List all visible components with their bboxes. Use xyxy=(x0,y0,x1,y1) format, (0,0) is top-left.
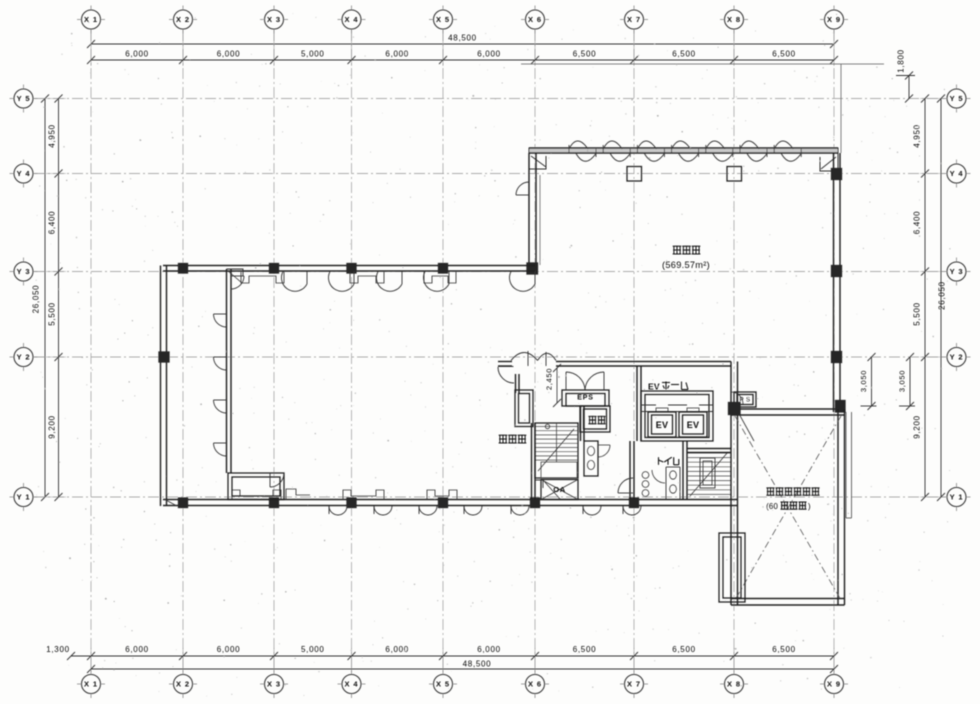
svg-text:Y 2: Y 2 xyxy=(17,353,31,362)
svg-text:X 5: X 5 xyxy=(436,680,450,689)
svg-text:6,500: 6,500 xyxy=(672,645,696,654)
svg-text:X 3: X 3 xyxy=(267,680,281,689)
svg-text:26,050: 26,050 xyxy=(32,285,41,314)
svg-text:X 9: X 9 xyxy=(827,680,841,689)
svg-text:4,950: 4,950 xyxy=(913,124,922,148)
svg-text:26,050: 26,050 xyxy=(938,281,947,310)
svg-text:Y 4: Y 4 xyxy=(950,169,964,178)
svg-text:6,500: 6,500 xyxy=(573,50,597,59)
svg-text:Y 5: Y 5 xyxy=(17,94,31,103)
svg-text:6,500: 6,500 xyxy=(772,645,796,654)
svg-text:6,000: 6,000 xyxy=(125,50,149,59)
svg-text:): ) xyxy=(808,502,811,511)
svg-text:9,200: 9,200 xyxy=(913,415,922,439)
svg-text:48,500: 48,500 xyxy=(448,34,477,43)
svg-text:X 6: X 6 xyxy=(528,15,542,24)
svg-text:6,000: 6,000 xyxy=(385,645,409,654)
svg-text:X 2: X 2 xyxy=(176,15,190,24)
svg-text:6,500: 6,500 xyxy=(672,50,696,59)
svg-text:X 2: X 2 xyxy=(176,680,190,689)
svg-text:X 1: X 1 xyxy=(84,680,98,689)
svg-text:EV: EV xyxy=(687,420,700,430)
svg-text:EV: EV xyxy=(656,420,669,430)
svg-text:5,000: 5,000 xyxy=(301,645,325,654)
svg-text:Y 5: Y 5 xyxy=(950,94,964,103)
svg-text:Y 2: Y 2 xyxy=(950,353,964,362)
svg-text:1,800: 1,800 xyxy=(897,49,906,73)
svg-text:6,000: 6,000 xyxy=(385,50,409,59)
svg-text:2,450: 2,450 xyxy=(545,368,554,390)
svg-text:Y 1: Y 1 xyxy=(950,493,964,502)
svg-text:X 4: X 4 xyxy=(345,15,359,24)
svg-text:Y 1: Y 1 xyxy=(17,493,31,502)
svg-text:Y 3: Y 3 xyxy=(17,267,31,276)
svg-text:4,950: 4,950 xyxy=(48,124,57,148)
svg-text:X 7: X 7 xyxy=(627,680,641,689)
svg-text:6,400: 6,400 xyxy=(48,211,57,235)
svg-text:EPS: EPS xyxy=(577,395,593,402)
svg-text:6,000: 6,000 xyxy=(217,50,241,59)
svg-text:5,500: 5,500 xyxy=(913,302,922,326)
svg-text:6,400: 6,400 xyxy=(913,211,922,235)
svg-text:6,000: 6,000 xyxy=(477,645,501,654)
svg-text:3,050: 3,050 xyxy=(859,370,868,392)
svg-text:X 9: X 9 xyxy=(827,15,841,24)
svg-text:6,500: 6,500 xyxy=(573,645,597,654)
svg-text:3,050: 3,050 xyxy=(898,370,907,392)
svg-text:5,500: 5,500 xyxy=(48,302,57,326)
svg-text:6,500: 6,500 xyxy=(772,50,796,59)
svg-text:OA: OA xyxy=(553,485,565,494)
svg-text:EV: EV xyxy=(648,382,660,392)
svg-text:X 6: X 6 xyxy=(528,680,542,689)
svg-text:X 7: X 7 xyxy=(627,15,641,24)
svg-text:1,300: 1,300 xyxy=(46,645,70,654)
svg-text:X 4: X 4 xyxy=(345,680,359,689)
svg-text:48,500: 48,500 xyxy=(463,660,492,669)
svg-text:X 3: X 3 xyxy=(267,15,281,24)
svg-text:6,000: 6,000 xyxy=(477,50,501,59)
svg-text:5,000: 5,000 xyxy=(301,50,325,59)
svg-text:X 8: X 8 xyxy=(727,680,741,689)
svg-text:X 1: X 1 xyxy=(84,15,98,24)
svg-text:6,000: 6,000 xyxy=(217,645,241,654)
svg-text:(569.57m²): (569.57m²) xyxy=(662,260,710,270)
svg-text:9,200: 9,200 xyxy=(48,415,57,439)
svg-text:6,000: 6,000 xyxy=(125,645,149,654)
svg-text:Y 3: Y 3 xyxy=(950,267,964,276)
svg-text:X 8: X 8 xyxy=(727,15,741,24)
svg-text:X 5: X 5 xyxy=(436,15,450,24)
svg-text:Y 4: Y 4 xyxy=(17,169,31,178)
